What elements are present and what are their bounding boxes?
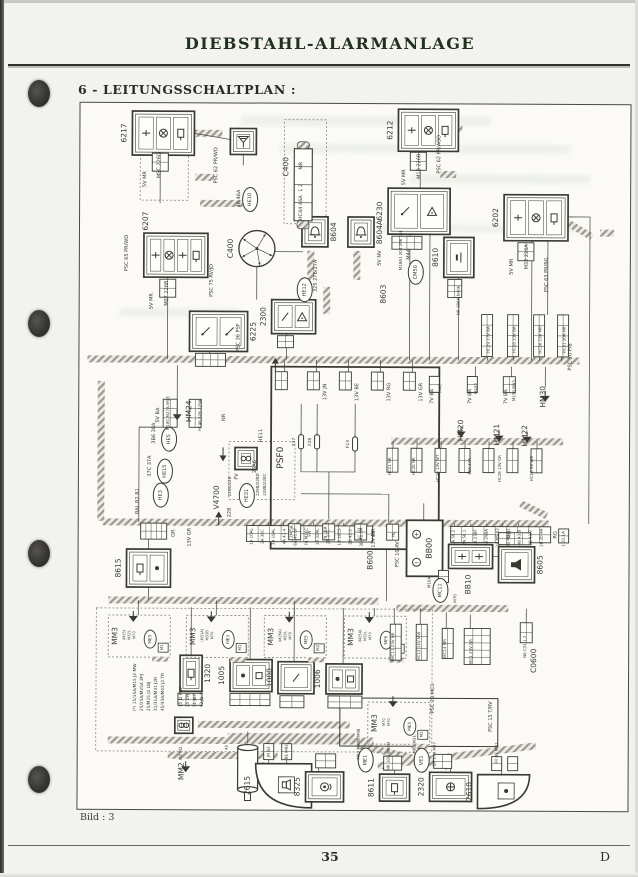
component-label-HM21: HM21 — [492, 424, 501, 446]
svg-text:5V MR: 5V MR — [149, 293, 155, 310]
svg-text:JN B2: JN B2 — [266, 746, 271, 758]
svg-text:RAL R2 R1: RAL R2 R1 — [135, 488, 141, 514]
wire-label: GR — [171, 529, 177, 537]
svg-text:BB10: BB10 — [463, 574, 472, 594]
svg-text:31/31A/M31 J2R: 31/31A/M31 J2R — [153, 677, 159, 711]
legend-note: 45/43A/M43 J2 TR — [160, 673, 166, 711]
svg-text:6212: 6212 — [385, 120, 394, 139]
component-label-MM2: MM2 — [177, 762, 186, 780]
svg-text:HC30 13V MR: HC30 13V MR — [537, 326, 542, 354]
wire-label: 4B 43.9 — [517, 530, 522, 546]
svg-text:M18 226B: M18 226B — [416, 153, 422, 179]
connector-block — [508, 757, 518, 771]
wire-label: 7V BA — [503, 389, 509, 405]
component-MM3-1: MM3(M15)M32LM70ME3M1 — [108, 615, 170, 659]
component-6225: 6225 — [189, 311, 257, 351]
fuse-F13: F13 — [345, 435, 358, 453]
svg-text:8325: 8325 — [293, 777, 302, 796]
wire-label: M4C — [437, 384, 442, 393]
svg-text:PSC 65 PR/WD: PSC 65 PR/WD — [124, 235, 130, 271]
wire-label: 2A 56.1 — [462, 529, 467, 545]
wire-label: 26A6 — [252, 460, 258, 473]
wire-label: 5V MR — [509, 258, 515, 275]
svg-text:MM3: MM3 — [346, 628, 355, 646]
component-funnel-box — [230, 128, 256, 154]
svg-text:26A6: 26A6 — [252, 460, 258, 473]
svg-text:MM3: MM3 — [266, 628, 275, 646]
component-1320: 1320 — [180, 655, 212, 691]
svg-text:BB00: BB00 — [425, 538, 434, 559]
figure-caption: Bild : 3 — [80, 812, 114, 823]
binder-hole — [28, 80, 50, 107]
svg-text:HE31: HE31 — [244, 489, 250, 502]
wire-label: PSC 23 MC1 — [430, 683, 436, 713]
svg-text:2610: 2610 — [464, 782, 473, 801]
svg-text:MR: MR — [298, 161, 304, 169]
wire-label: NR 10G M98D — [386, 742, 391, 770]
wire-label: 45 — [224, 744, 229, 750]
svg-text:25/25A/M25A ZPJ: 25/25A/M25A ZPJ — [139, 674, 145, 711]
wire-label: 5V MR — [142, 171, 148, 188]
connector-block — [141, 523, 167, 539]
svg-text:MSC 226G: MSC 226G — [156, 152, 162, 178]
component-6230: 6230 — [375, 188, 450, 234]
svg-text:37C 37A: 37C 37A — [147, 455, 153, 477]
svg-text:7A 29BA: 7A 29BA — [484, 529, 489, 546]
svg-text:HM21: HM21 — [492, 424, 501, 446]
component-1006: 1006 — [313, 664, 362, 694]
page-title: DIEBSTAHL-ALARMANLAGE — [0, 34, 638, 53]
svg-text:4B 43.9: 4B 43.9 — [517, 530, 522, 546]
wire-label: 228B/22BC — [262, 473, 267, 496]
ground-symbol — [207, 611, 216, 622]
svg-text:HC28 13V GR: HC28 13V GR — [497, 455, 502, 482]
svg-text:13V GR: 13V GR — [418, 382, 424, 401]
svg-text:FV: FV — [234, 473, 240, 480]
component-6217: 6217 — [119, 111, 194, 155]
connector-block — [307, 372, 319, 390]
svg-text:M70: M70 — [452, 594, 457, 603]
wire-label: PSC 75 RV/JD — [209, 264, 215, 297]
wire-label: HC30 13V MR — [537, 326, 542, 354]
svg-text:42 J2 TI: 42 J2 TI — [199, 691, 205, 707]
svg-text:ME5: ME5 — [407, 721, 412, 730]
svg-text:M1: M1 — [159, 644, 164, 650]
svg-text:PSC 10 AV: PSC 10 AV — [395, 541, 401, 567]
component-1005: 1005 — [217, 659, 272, 691]
svg-text:4A 43.4: 4A 43.4 — [282, 529, 287, 545]
svg-text:HC29 17V BA: HC29 17V BA — [485, 326, 490, 353]
svg-text:1C 1D: 1C 1D — [357, 528, 362, 540]
svg-text:M2: M2 — [315, 644, 320, 650]
svg-text:6230: 6230 — [375, 201, 384, 220]
wire-label: 5V MR — [149, 293, 155, 310]
wire-label: 46 46A — [236, 189, 242, 207]
svg-text:(M25A): (M25A) — [358, 629, 362, 643]
wire-label: HC21 NR — [387, 457, 392, 475]
wire-label: MR2 M400 M98 — [356, 728, 361, 759]
svg-text:3B6 38A: 3B6 38A — [151, 422, 157, 444]
svg-text:HC28 13V BA: HC28 13V BA — [511, 326, 516, 353]
wire-label: 5V NV — [377, 250, 383, 266]
svg-text:1A 16AL: 1A 16AL — [249, 527, 254, 544]
component-BB00: +−BB00 — [406, 520, 442, 576]
svg-text:HE3: HE3 — [158, 490, 164, 500]
component-label-V4700: V4700 — [212, 485, 221, 509]
svg-text:HE11: HE11 — [258, 429, 264, 442]
wire-label: PSC 62 PR/WD — [213, 147, 219, 183]
svg-text:(M15): (M15) — [122, 629, 126, 640]
wire-label: M4A — [406, 248, 412, 260]
wire-label: MC1 23V NR — [468, 639, 473, 664]
svg-text:PSF0: PSF0 — [276, 446, 286, 468]
wire-label: 13V GR — [418, 382, 424, 401]
wire — [301, 450, 355, 472]
component-label-C0600: C0600 — [529, 648, 538, 673]
svg-text:HC31 20A NR: HC31 20A NR — [561, 326, 566, 353]
label-oval-HE10: HE10 — [243, 188, 258, 212]
label-oval-HE31: HE31 — [239, 484, 254, 508]
svg-text:2A 23BF: 2A 23BF — [473, 528, 478, 545]
wire-label: MR — [298, 161, 304, 169]
component-MM3-5: MM3M70M70ME5M2 — [368, 702, 430, 746]
svg-text:M4X2: M4X2 — [473, 382, 478, 394]
legend-note: 25 ZPJ — [185, 694, 191, 708]
legend-note: (*) 15/15A/M15 J2 MW — [132, 663, 138, 711]
svg-text:(*) 15/15A/M15 J2 MW: (*) 15/15A/M15 J2 MW — [132, 663, 138, 711]
wire-label: M32 226A — [524, 244, 530, 270]
component-cc-box — [175, 717, 193, 733]
svg-text:PSC 50 P/B: PSC 50 P/B — [567, 343, 573, 371]
binder-hole — [28, 310, 50, 337]
wire-label: HC20 NR — [411, 457, 416, 475]
svg-text:6225: 6225 — [249, 322, 258, 341]
label-oval-HE3: HE3 — [153, 483, 168, 507]
wire-label: 1 2 — [298, 184, 304, 192]
ground-symbol — [365, 612, 374, 623]
component-C400-ring: C400 — [226, 230, 275, 266]
wire-bundle — [101, 381, 102, 521]
svg-text:1005: 1005 — [217, 666, 226, 685]
svg-text:2B M5.01: 2B M5.01 — [506, 528, 511, 547]
section-heading: 6 - LEITUNGSSCHALTPLAN : — [78, 82, 296, 97]
component-label-8603: 8603 — [379, 284, 388, 303]
wire-label: 2B M5.01 — [506, 528, 511, 547]
svg-text:F13: F13 — [345, 440, 351, 448]
svg-text:M18C M27A M93: M18C M27A M93 — [165, 396, 170, 430]
svg-text:GR: GR — [171, 529, 177, 537]
wire-label: HC26 13V WT — [435, 454, 440, 482]
scan-edge-bottom — [0, 873, 638, 877]
wire-label: 229B/22BD — [255, 473, 260, 496]
svg-text:M70: M70 — [288, 631, 292, 639]
svg-text:45/43A/M43 J2 TR: 45/43A/M43 J2 TR — [160, 673, 166, 711]
svg-text:NR 1B6A N406: NR 1B6A N406 — [456, 285, 461, 315]
svg-text:MC14 MR: MC14 MR — [442, 639, 447, 658]
wiring-diagram-frame: 6217621262306202620786048604A86106225230… — [76, 102, 631, 812]
component-MM3-3: MM3(M26A)M32LM70ME5M2 — [264, 616, 326, 660]
svg-text:ME1: ME1 — [363, 755, 369, 766]
svg-text:25/M25 J2 LBJ: 25/M25 J2 LBJ — [146, 682, 152, 711]
svg-text:HC16 5V WS: HC16 5V WS — [529, 456, 534, 482]
svg-text:F27: F27 — [291, 437, 297, 445]
wire-label: NR 1B6A N406 — [456, 285, 461, 315]
svg-text:MM2: MM2 — [177, 762, 186, 780]
ground-symbol — [285, 612, 294, 623]
ground-symbol — [129, 611, 138, 622]
svg-text:BN: BN — [371, 531, 376, 537]
svg-text:5W: 5W — [307, 530, 312, 537]
wire-label: 1B M5.02 — [495, 528, 500, 547]
wiring-diagram-svg: 6217621262306202620786048604A86106225230… — [77, 103, 630, 811]
svg-text:1 32.1A: 1 32.1A — [561, 531, 566, 547]
svg-text:228: 228 — [227, 508, 233, 518]
wire-bundle — [108, 600, 378, 601]
svg-text:2320: 2320 — [417, 777, 426, 796]
svg-text:6217: 6217 — [119, 123, 128, 142]
svg-text:2A 38C: 2A 38C — [260, 529, 265, 544]
svg-text:PSC 36 PSF: PSC 36 PSF — [235, 323, 241, 351]
svg-text:36A 37A: 36A 37A — [467, 458, 472, 475]
svg-text:MM3: MM3 — [370, 714, 379, 732]
component-6202: 6202 — [491, 195, 568, 241]
wire-label: 1N 16A — [323, 526, 328, 541]
wire-label: M150 M93 — [511, 380, 516, 401]
svg-text:HE5: HE5 — [166, 434, 172, 444]
svg-text:MR2 M400 M98: MR2 M400 M98 — [356, 728, 361, 759]
connector-block — [339, 372, 351, 390]
wire — [429, 234, 430, 360]
svg-text:3B 43.5: 3B 43.5 — [348, 529, 353, 545]
wire-label: PSC 15 T/RV — [488, 701, 494, 732]
svg-text:BE M92: BE M92 — [284, 744, 289, 760]
wire-label: HC28 13V BA — [511, 326, 516, 353]
svg-text:(M31A): (M31A) — [200, 628, 204, 642]
connector-block — [316, 754, 336, 768]
svg-text:M2 M2: M2 M2 — [178, 746, 183, 760]
legend-note: 15 J2 MW — [178, 686, 184, 707]
wire-label: N6 C31 1 2 — [522, 635, 527, 658]
wire-label: HE11 — [258, 429, 264, 442]
svg-text:8605: 8605 — [535, 555, 544, 574]
wire-label: PSC 65 PR/WD — [124, 235, 130, 271]
wire-label: 4A 43.4 — [282, 529, 287, 545]
wire-label: PSC 36 PSF — [235, 323, 241, 351]
title-rule — [8, 64, 630, 66]
connector-block — [328, 696, 362, 708]
svg-text:PSC 23 MC1: PSC 23 MC1 — [430, 683, 436, 713]
wire-label: 2B 20.4A — [539, 528, 544, 546]
svg-text:MC12 14V MW: MC12 14V MW — [416, 632, 421, 661]
component-8615: 8615 — [113, 549, 170, 587]
svg-text:RG: RG — [553, 531, 559, 539]
component-label-HM22: HM22 — [520, 425, 529, 447]
svg-text:F28: F28 — [307, 438, 313, 446]
svg-text:13V JN: 13V JN — [322, 383, 328, 400]
wire-label: 1C 1D — [357, 528, 362, 540]
wire-label: HC29 17V BA — [485, 326, 490, 353]
scan-edge-left — [0, 0, 4, 877]
svg-text:2B 43.0: 2B 43.0 — [528, 530, 533, 546]
svg-text:1 2: 1 2 — [298, 184, 304, 192]
svg-text:HC46 32B 229A: HC46 32B 229A — [197, 399, 202, 431]
svg-text:1B 10CS: 1B 10CS — [337, 528, 342, 545]
wire-label: JN B2 — [266, 746, 271, 758]
svg-text:5V MR: 5V MR — [142, 171, 148, 188]
wire-label: HC46 32B 229A — [197, 399, 202, 431]
wire-label: 228 — [227, 508, 233, 518]
connector-block — [280, 696, 304, 708]
wire-bundle — [521, 504, 547, 516]
wire-bundle — [568, 223, 592, 237]
wire-label: 2A 38C — [260, 529, 265, 544]
svg-text:8603: 8603 — [379, 284, 388, 303]
wire-label: 2A 23BF — [473, 528, 478, 545]
wire-bundle — [228, 736, 355, 737]
svg-text:13V RG: 13V RG — [386, 383, 392, 402]
svg-text:5V BA: 5V BA — [155, 407, 161, 423]
svg-text:6207: 6207 — [141, 211, 150, 230]
svg-text:M70: M70 — [132, 630, 136, 638]
svg-text:PSC 75 RV/JD: PSC 75 RV/JD — [209, 264, 215, 297]
connector-block — [371, 372, 383, 390]
svg-text:1A 50.2: 1A 50.2 — [451, 529, 456, 545]
wire-label: 2B 43.0 — [528, 530, 533, 546]
connector-block — [392, 236, 422, 249]
svg-text:46 46A: 46 46A — [236, 189, 242, 207]
svg-text:7V BA: 7V BA — [503, 389, 509, 405]
wire-label: MSC 226G — [156, 152, 162, 178]
svg-text:PSC 63 PR/BG: PSC 63 PR/BG — [544, 257, 550, 292]
wire-label: RI BE MB1 — [494, 742, 499, 763]
svg-text:1006: 1006 — [313, 669, 322, 688]
svg-text:M07 226B: M07 226B — [164, 280, 170, 306]
svg-text:M4A: M4A — [406, 248, 412, 260]
wire-label: HC44 46A — [298, 195, 304, 221]
svg-text:229B/22BD: 229B/22BD — [255, 473, 260, 496]
svg-text:M70: M70 — [387, 718, 391, 726]
svg-text:1000: 1000 — [265, 668, 274, 687]
svg-text:M4C: M4C — [437, 384, 442, 393]
svg-text:M1: M1 — [237, 644, 242, 650]
wire-label: 13V BE — [354, 383, 360, 401]
svg-text:M70: M70 — [210, 631, 214, 639]
svg-text:13V BE: 13V BE — [354, 383, 360, 401]
svg-text:M70: M70 — [368, 632, 372, 640]
svg-text:2B 20.4A: 2B 20.4A — [539, 528, 544, 546]
svg-text:M32B: M32B — [205, 630, 209, 641]
svg-text:45: 45 — [224, 744, 229, 750]
component-label-HM24: HM24 — [184, 400, 193, 422]
svg-text:N6 C31 1 2: N6 C31 1 2 — [522, 635, 527, 658]
wire-label: HC16 5V WS — [529, 456, 534, 482]
component-MM3-2: MM3(M31A)M32BM70ME3M1 — [186, 615, 248, 659]
svg-text:+: + — [414, 531, 419, 538]
wire-label: 37C 37A — [147, 455, 153, 477]
svg-text:22B0/22B: 22B0/22B — [227, 476, 232, 496]
svg-text:HE15: HE15 — [162, 465, 168, 478]
wire-label: 1B 10CS — [337, 528, 342, 545]
wire-label: BE M92 — [284, 744, 289, 760]
component-6212: 6212 — [385, 109, 458, 151]
svg-text:15 J2 MW: 15 J2 MW — [178, 686, 184, 707]
wire-label: M4X2 — [473, 382, 478, 394]
wire-label: 22B0/22B — [227, 476, 232, 496]
label-oval-HE15: HE15 — [157, 459, 172, 483]
svg-text:8615: 8615 — [113, 558, 122, 577]
label-oval-CM50: CM50 — [408, 260, 423, 284]
svg-text:VE1: VE1 — [419, 755, 425, 765]
svg-text:25 ZPJ: 25 ZPJ — [185, 694, 191, 708]
svg-text:B600: B600 — [366, 550, 375, 570]
label-oval-MC11: MC11 — [433, 578, 448, 602]
svg-text:HE12: HE12 — [302, 283, 308, 296]
svg-text:HC44 46A: HC44 46A — [298, 195, 304, 221]
svg-text:2M 5A: 2M 5A — [289, 525, 294, 538]
svg-text:228B/22BC: 228B/22BC — [262, 473, 267, 496]
svg-text:ME3: ME3 — [147, 634, 152, 643]
wire-label: RG — [553, 531, 559, 539]
svg-text:2300: 2300 — [259, 307, 268, 326]
svg-text:M32 226A: M32 226A — [524, 244, 530, 270]
svg-text:2615: 2615 — [243, 776, 252, 795]
svg-text:NR: NR — [221, 413, 227, 421]
wire-label: 1A 50.2 — [451, 529, 456, 545]
wire-label: PSC 62 PR/AGO — [436, 135, 442, 174]
wire-label: 7V BA — [429, 388, 435, 404]
svg-text:HM24: HM24 — [184, 400, 193, 422]
wire-label: 2M 5A — [289, 525, 294, 538]
svg-text:MM3: MM3 — [188, 627, 197, 645]
wire-label: 1B 32AL — [315, 528, 320, 545]
wire-label: MC12 14V MW — [416, 632, 421, 661]
svg-text:GR 17A M37: GR 17A M37 — [432, 741, 437, 766]
svg-text:MC1 23V NR: MC1 23V NR — [468, 639, 473, 664]
component-2320: 2320 — [416, 772, 471, 801]
wire-label: 5W — [307, 530, 312, 537]
svg-text:8604A: 8604A — [375, 219, 384, 244]
wire-label: 325 27B/27A — [313, 259, 319, 292]
wire-label: FV — [234, 473, 240, 480]
wire-label: M18A1 204 206 16L — [398, 229, 403, 270]
page-number: 35 — [0, 849, 638, 864]
svg-text:M18A1 204 206 16L: M18A1 204 206 16L — [398, 229, 403, 270]
wire-bundle — [198, 724, 350, 725]
svg-text:C400: C400 — [281, 157, 290, 177]
svg-text:(M26A): (M26A) — [278, 629, 282, 643]
component-BB10: BB10 — [448, 544, 492, 594]
component-C400-conn: C400 — [281, 142, 312, 229]
wire-label: 13V RG — [386, 383, 392, 402]
wire-label: M07 226B — [164, 280, 170, 306]
svg-text:M32L: M32L — [363, 631, 367, 641]
binder-hole — [28, 540, 50, 567]
wire-label: NR — [221, 413, 227, 421]
svg-text:M32L: M32L — [127, 630, 131, 640]
wire-label: RAL R2 R1 — [135, 488, 141, 514]
svg-text:8611: 8611 — [367, 778, 376, 797]
svg-text:M2: M2 — [419, 731, 424, 737]
wire-label: M70 — [452, 594, 457, 603]
component-label-B600: B600 — [366, 550, 375, 570]
svg-text:CM50: CM50 — [413, 265, 419, 279]
component-8610: 8610 — [431, 237, 474, 277]
svg-text:−: − — [414, 559, 419, 566]
svg-text:MC11 23V NR: MC11 23V NR — [390, 632, 395, 660]
svg-text:8604: 8604 — [329, 222, 338, 241]
connector-block — [499, 533, 531, 545]
connector-block — [277, 336, 293, 348]
